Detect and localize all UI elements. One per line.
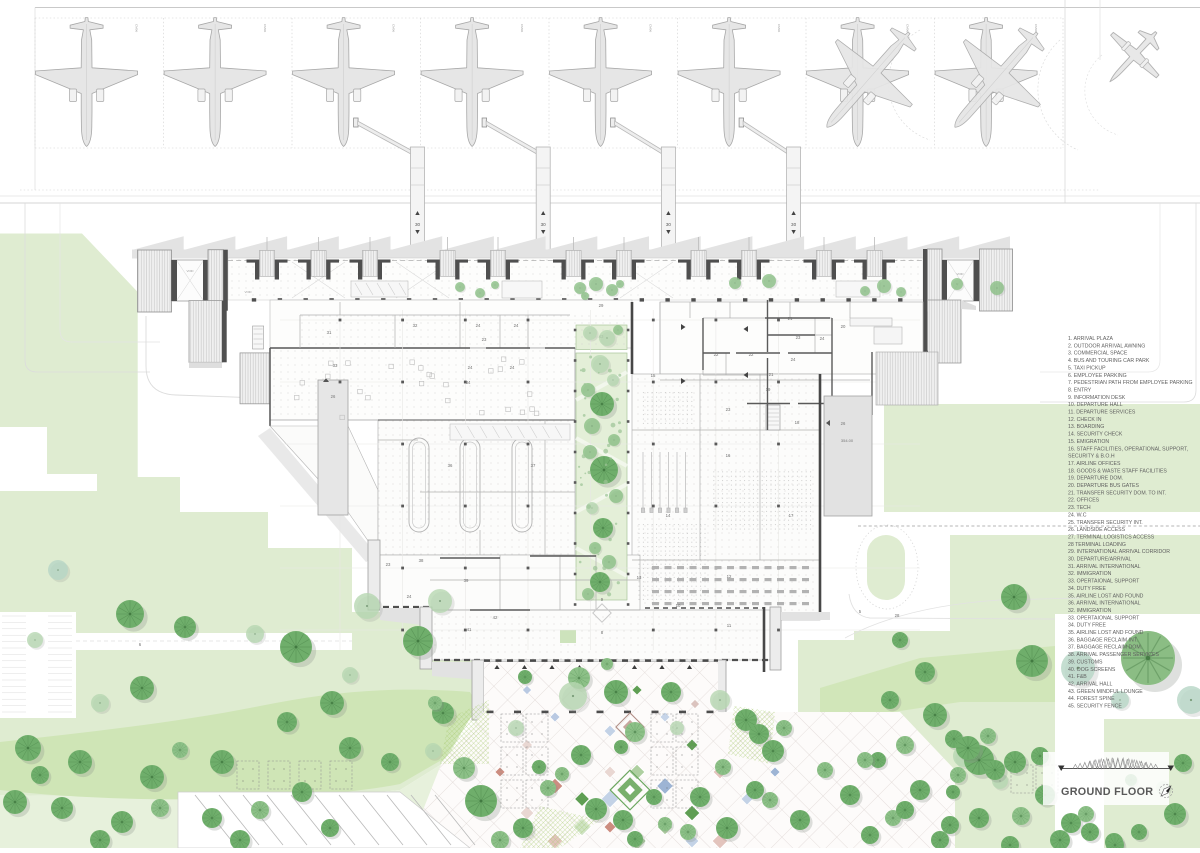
svg-text:33: 33 [333,363,338,368]
svg-text:VOID: VOID [186,269,193,273]
svg-text:14. SECURITY CHECK: 14. SECURITY CHECK [1068,432,1123,438]
svg-text:CM96: CM96 [135,24,139,33]
svg-text:CM96: CM96 [649,24,653,33]
svg-text:12: 12 [727,574,732,579]
svg-text:42. ARRIVAL HALL: 42. ARRIVAL HALL [1068,682,1113,688]
svg-text:23: 23 [726,407,731,412]
svg-text:36: 36 [448,463,453,468]
svg-text:11. DEPARTURE SERVICES: 11. DEPARTURE SERVICES [1068,410,1136,416]
svg-text:CM96: CM96 [263,24,267,33]
svg-text:13. BOARDING: 13. BOARDING [1068,424,1104,430]
svg-text:5. TAXI PICKUP: 5. TAXI PICKUP [1068,365,1106,371]
svg-text:21: 21 [769,372,774,377]
svg-text:41: 41 [467,627,472,632]
svg-text:12. CHECK IN: 12. CHECK IN [1068,417,1102,423]
svg-text:35. AIRLINE LOST AND FOUND: 35. AIRLINE LOST AND FOUND [1068,630,1144,636]
svg-text:30. DEPARTURE/ARRIVAL: 30. DEPARTURE/ARRIVAL [1068,557,1132,563]
svg-text:22: 22 [749,352,754,357]
svg-text:24: 24 [510,365,515,370]
svg-text:38. ARRIVAL PASSENGER SERVICES: 38. ARRIVAL PASSENGER SERVICES [1068,652,1159,658]
svg-text:10: 10 [676,603,681,608]
svg-text:18. GOODS & WASTE STAFF FACILI: 18. GOODS & WASTE STAFF FACILITIES [1068,468,1167,474]
svg-text:32: 32 [413,323,418,328]
svg-text:VOID: VOID [244,290,251,294]
svg-text:GROUND FLOOR: GROUND FLOOR [1061,786,1153,798]
svg-text:1. ARRIVAL PLAZA: 1. ARRIVAL PLAZA [1068,336,1114,342]
svg-text:15: 15 [651,373,656,378]
svg-text:4. BUS AND TOURING CAR PARK: 4. BUS AND TOURING CAR PARK [1068,358,1150,364]
svg-text:CM96: CM96 [392,24,396,33]
svg-text:CM96: CM96 [520,24,524,33]
svg-text:41. F&B: 41. F&B [1068,674,1087,680]
svg-text:23. TECH: 23. TECH [1068,505,1091,511]
svg-text:30: 30 [666,222,672,227]
svg-text:26: 26 [331,394,336,399]
svg-text:26. LANDSIDE ACCESS: 26. LANDSIDE ACCESS [1068,527,1126,533]
svg-text:38: 38 [419,558,424,563]
svg-text:31. ARRIVAL INTERNATIONAL: 31. ARRIVAL INTERNATIONAL [1068,564,1141,570]
svg-text:19: 19 [766,387,771,392]
svg-text:35. AIRLINE LOST AND FOUND: 35. AIRLINE LOST AND FOUND [1068,593,1144,599]
svg-text:27. TERMINAL LOGISTICS ACCESS: 27. TERMINAL LOGISTICS ACCESS [1068,535,1155,541]
svg-text:20. DEPARTURE BUS GATES: 20. DEPARTURE BUS GATES [1068,483,1139,489]
svg-text:8. ENTRY: 8. ENTRY [1068,388,1092,394]
svg-text:354.00: 354.00 [841,438,854,443]
svg-text:7. PEDESTRIAN PATH FROM EMPLOY: 7. PEDESTRIAN PATH FROM EMPLOYEE PARKING [1068,380,1193,386]
svg-text:36. BAGGAGE RECLAIM INT.: 36. BAGGAGE RECLAIM INT. [1068,637,1138,643]
svg-text:16: 16 [726,453,731,458]
svg-text:24: 24 [514,323,519,328]
svg-text:24. W.C: 24. W.C [1068,512,1087,518]
svg-text:23: 23 [386,562,391,567]
svg-text:36. ARRIVAL INTERNATIONAL: 36. ARRIVAL INTERNATIONAL [1068,601,1141,607]
svg-text:40. OOG SCREENS: 40. OOG SCREENS [1068,667,1116,673]
svg-text:42: 42 [493,615,498,620]
svg-text:26: 26 [841,421,846,426]
svg-text:22: 22 [714,352,719,357]
svg-text:10. DEPARTURE HALL: 10. DEPARTURE HALL [1068,402,1123,408]
svg-text:CM96: CM96 [777,24,781,33]
svg-text:19. DEPARTURE DOM.: 19. DEPARTURE DOM. [1068,476,1123,482]
svg-text:32. IMMIGRATION: 32. IMMIGRATION [1068,608,1112,614]
svg-text:23: 23 [482,337,487,342]
svg-text:13: 13 [637,575,642,580]
svg-text:9. INFORMATION DESK: 9. INFORMATION DESK [1068,395,1126,401]
svg-text:30: 30 [541,222,547,227]
svg-text:31: 31 [327,330,332,335]
svg-text:24: 24 [476,323,481,328]
svg-text:20: 20 [841,324,846,329]
svg-text:37: 37 [531,463,536,468]
svg-text:24: 24 [791,357,796,362]
svg-text:29: 29 [599,303,604,308]
svg-text:15. EMIGRATION: 15. EMIGRATION [1068,439,1109,445]
svg-text:34. DUTY FREE: 34. DUTY FREE [1068,586,1106,592]
svg-text:16. STAFF FACILITIES, OPERATIO: 16. STAFF FACILITIES, OPERATIONAL SUPPOR… [1068,446,1188,452]
svg-text:28 TERMINAL LOADING: 28 TERMINAL LOADING [1068,542,1126,548]
svg-text:24: 24 [820,336,825,341]
svg-text:2. OUTDOOR ARRIVAL AWNING: 2. OUTDOOR ARRIVAL AWNING [1068,343,1145,349]
svg-text:32. IMMIGRATION: 32. IMMIGRATION [1068,571,1112,577]
svg-text:21: 21 [788,316,793,321]
svg-text:33. OPERTAIONAL SUPPORT: 33. OPERTAIONAL SUPPORT [1068,615,1140,621]
svg-text:CM96: CM96 [906,24,910,33]
svg-text:24: 24 [407,594,412,599]
svg-text:24: 24 [468,365,473,370]
svg-text:34: 34 [466,380,471,385]
svg-text:25. TRANSFER SECURITY INT.: 25. TRANSFER SECURITY INT. [1068,520,1143,526]
svg-text:28: 28 [895,613,900,618]
svg-text:21. TRANSFER SECURITY DOM. TO: 21. TRANSFER SECURITY DOM. TO INT. [1068,490,1166,496]
svg-text:33. OPERTAIONAL SUPPORT: 33. OPERTAIONAL SUPPORT [1068,579,1140,585]
svg-text:CM96: CM96 [1034,24,1038,33]
svg-text:37. BAGGAGE RECLAIM DOM.: 37. BAGGAGE RECLAIM DOM. [1068,645,1142,651]
svg-text:30: 30 [791,222,797,227]
svg-text:SECURITY & B.O.H: SECURITY & B.O.H [1068,454,1115,460]
svg-text:3. COMMERCIAL SPACE: 3. COMMERCIAL SPACE [1068,351,1128,357]
svg-text:17. AIRLINE OFFICES: 17. AIRLINE OFFICES [1068,461,1121,467]
svg-text:45. SECURITY FENCE: 45. SECURITY FENCE [1068,704,1122,710]
svg-text:18: 18 [795,420,800,425]
svg-text:VOID: VOID [956,272,963,276]
svg-text:29. INTERNATIONAL ARRIVAL CORR: 29. INTERNATIONAL ARRIVAL CORRIDOR [1068,549,1170,555]
svg-text:43. GREEN MINDFUL LOUNGE: 43. GREEN MINDFUL LOUNGE [1068,689,1143,695]
svg-text:22. OFFICES: 22. OFFICES [1068,498,1100,504]
svg-text:44. FOREST SPINE: 44. FOREST SPINE [1068,696,1115,702]
svg-text:11: 11 [727,623,732,628]
svg-text:39: 39 [464,578,469,583]
svg-text:6. EMPLOYEE PARKING: 6. EMPLOYEE PARKING [1068,373,1127,379]
svg-text:39. CUSTOMS: 39. CUSTOMS [1068,659,1103,665]
svg-text:30: 30 [415,222,421,227]
svg-text:14: 14 [666,513,671,518]
svg-text:34. DUTY FREE: 34. DUTY FREE [1068,623,1106,629]
svg-text:23: 23 [796,335,801,340]
svg-text:17: 17 [789,513,794,518]
